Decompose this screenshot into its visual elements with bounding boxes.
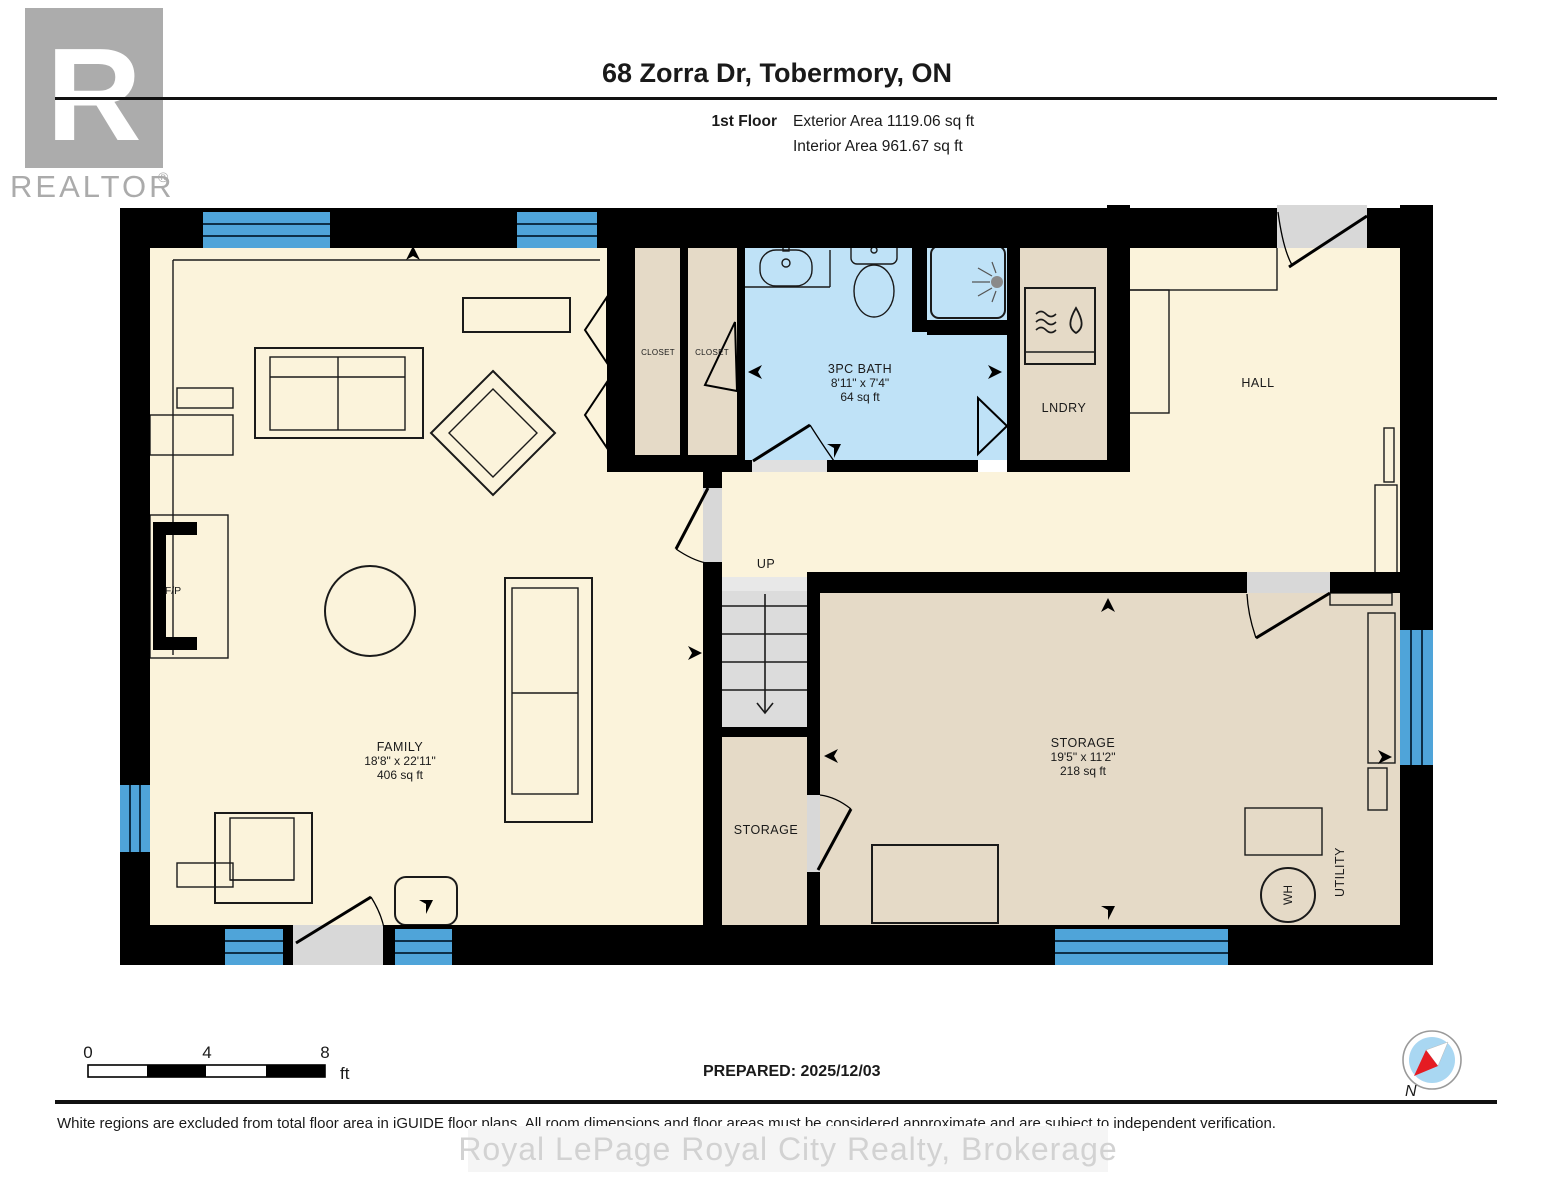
compass: N (1403, 1031, 1461, 1100)
realtor-logo-letter: R (46, 21, 141, 168)
interior-area: Interior Area 961.67 sq ft (793, 138, 963, 155)
exterior-area: Exterior Area 1119.06 sq ft (793, 113, 975, 130)
realtor-logo: R REALTOR ® (10, 8, 175, 204)
realtor-wordmark: REALTOR (10, 169, 175, 204)
prepared-date: PREPARED: 2025/12/03 (703, 1063, 881, 1080)
scale-bar: 0 4 8 ft (83, 1043, 349, 1083)
bath-label: 3PC BATH (828, 362, 892, 376)
bath-dims: 8'11" x 7'4" (831, 376, 889, 390)
room-hall-floor (1130, 248, 1400, 572)
window (225, 929, 283, 965)
scale-tick-4: 4 (202, 1043, 211, 1062)
family-area: 406 sq ft (377, 768, 424, 782)
header-rule (55, 97, 1497, 100)
scale-tick-8: 8 (320, 1043, 329, 1062)
corridor-doorway (703, 488, 722, 562)
room-bath-floor (745, 240, 1007, 460)
storage-small-doorway (807, 795, 820, 872)
hall-label: HALL (1241, 376, 1274, 390)
family-doorway (293, 925, 383, 965)
scale-unit: ft (340, 1064, 350, 1083)
bath-doorway (752, 460, 827, 472)
bath-area: 64 sq ft (840, 390, 880, 404)
floor-plan-page: R REALTOR ® 68 Zorra Dr, Tobermory, ON 1… (0, 0, 1553, 1200)
storage-small-label: STORAGE (734, 823, 798, 837)
footer-rule (55, 1100, 1497, 1104)
window (120, 785, 150, 852)
compass-north-label: N (1405, 1083, 1417, 1100)
brokerage-watermark: Royal LePage Royal City Realty, Brokerag… (458, 1131, 1117, 1167)
family-label: FAMILY (377, 740, 424, 754)
closet-left-label: CLOSET (641, 348, 675, 357)
scale-tick-0: 0 (83, 1043, 92, 1062)
window (203, 212, 330, 248)
window (395, 929, 452, 965)
fireplace-label: F/P (165, 585, 181, 597)
corridor-floor (722, 472, 1130, 577)
family-dims: 18'8" x 22'11" (364, 754, 436, 768)
window (1055, 929, 1228, 965)
water-heater-label: WH (1281, 885, 1295, 905)
closet-right-label: CLOSET (695, 348, 729, 357)
shower-head-icon (991, 276, 1003, 288)
window (517, 212, 597, 248)
registered-mark: ® (158, 169, 169, 185)
utility-label: UTILITY (1333, 847, 1347, 897)
page-title: 68 Zorra Dr, Tobermory, ON (602, 58, 952, 88)
laundry-label: LNDRY (1042, 401, 1087, 415)
fireplace-bottom (153, 637, 197, 650)
up-label: UP (757, 557, 775, 571)
window (1400, 630, 1433, 765)
floor-label: 1st Floor (712, 113, 777, 130)
storage-doorway (1247, 572, 1330, 593)
storage-dims: 19'5" x 11'2" (1051, 750, 1116, 764)
stairs-landing (722, 577, 807, 591)
storage-label: STORAGE (1051, 736, 1115, 750)
storage-area: 218 sq ft (1060, 764, 1107, 778)
